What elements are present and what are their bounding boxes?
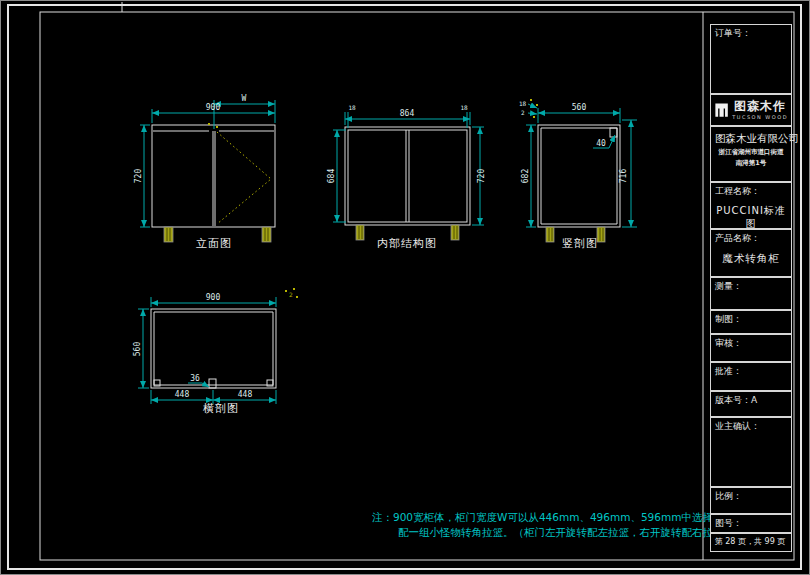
note-line-2: 配一组小怪物转角拉篮。（柜门左开旋转配左拉篮，右开旋转配右拉篮）	[398, 526, 734, 538]
horizontal-section-title: 横剖图	[203, 402, 239, 415]
drawing-notes: 注：900宽柜体，柜门宽度W可以从446mm、496mm、596mm中选择， 配…	[372, 511, 734, 538]
dim-internal-inner-height: 684	[327, 169, 336, 184]
dim-internal-inner-width: 864	[400, 109, 415, 118]
center-partition-stub	[209, 379, 216, 388]
dim-section-top-b: 2	[521, 109, 525, 116]
cabinet-leg	[597, 227, 605, 242]
dim-section-left-height: 682	[521, 169, 530, 184]
horizontal-section-view: 900 560 448 448 36 2 横剖图	[133, 288, 298, 415]
internal-view-title: 内部结构图	[377, 237, 437, 250]
dim-plan-width: 900	[206, 293, 221, 302]
dim-section-top-a: 18	[519, 100, 527, 107]
cabinet-leg	[164, 227, 173, 242]
dim-plan-left-half: 448	[175, 390, 190, 399]
note-line-1: 注：900宽柜体，柜门宽度W可以从446mm、496mm、596mm中选择，	[372, 511, 723, 523]
elevation-view: 900 W 720 立面图	[134, 94, 275, 250]
revision-mark: 2	[289, 291, 293, 298]
door-swing-dashed	[217, 132, 271, 224]
dim-back-rail-height: 40	[596, 139, 606, 148]
vertical-section-title: 竖剖图	[562, 237, 598, 250]
back-rail	[610, 128, 617, 137]
dim-elevation-height: 720	[134, 169, 143, 184]
internal-structure-view: 18 864 18 684 720 内部结构图	[327, 104, 486, 250]
elevation-view-title: 立面图	[196, 237, 232, 250]
vertical-section-view: 560 682 716 40 18 2 竖剖图	[519, 99, 637, 250]
dim-elevation-door-width: W	[242, 94, 247, 103]
dim-section-depth: 560	[572, 103, 587, 112]
cad-drawing-canvas: 900 W 720 立面图 18 864 18	[0, 0, 810, 575]
dim-partition: 36	[190, 374, 200, 383]
dim-section-right-height: 716	[619, 169, 628, 184]
dim-elevation-width: 900	[206, 103, 221, 112]
dim-internal-left-panel: 18	[348, 104, 356, 111]
cabinet-leg	[451, 225, 459, 240]
elevation-dimensions: 900 W 720	[134, 94, 275, 227]
dim-internal-height: 720	[477, 169, 486, 184]
dim-internal-right-panel: 18	[460, 104, 468, 111]
dim-plan-right-half: 448	[238, 390, 253, 399]
drawing-frame	[1, 1, 810, 575]
cabinet-leg	[262, 227, 271, 242]
dim-plan-depth: 560	[133, 342, 142, 357]
cabinet-leg	[546, 227, 554, 242]
vertical-section-dimensions: 560 682 716 40 18 2	[519, 99, 637, 227]
cabinet-leg	[356, 225, 364, 240]
